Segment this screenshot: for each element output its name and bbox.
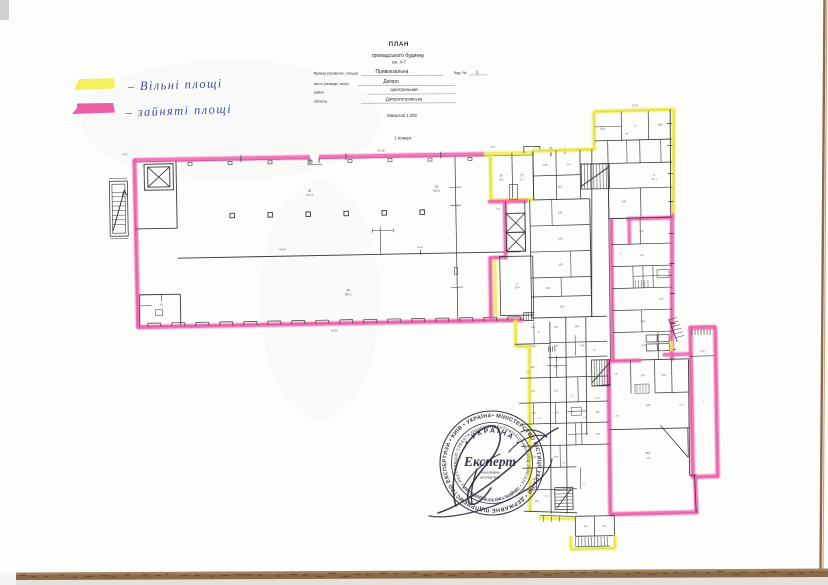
svg-text:150: 150 bbox=[558, 236, 563, 240]
svg-text:154: 154 bbox=[639, 229, 644, 233]
svg-text:160: 160 bbox=[646, 403, 651, 407]
svg-text:152: 152 bbox=[546, 286, 551, 290]
svg-text:157: 157 bbox=[659, 297, 664, 301]
svg-text:271.6: 271.6 bbox=[306, 193, 314, 197]
svg-text:176: 176 bbox=[595, 411, 600, 414]
svg-text:37: 37 bbox=[521, 173, 525, 177]
svg-text:167: 167 bbox=[554, 345, 559, 348]
svg-text:область: область bbox=[314, 99, 327, 103]
svg-text:175: 175 bbox=[554, 412, 559, 415]
svg-text:37.1: 37.1 bbox=[652, 177, 658, 181]
svg-text:169: 169 bbox=[531, 366, 536, 369]
svg-text:1.50: 1.50 bbox=[700, 350, 705, 353]
svg-text:505: 505 bbox=[658, 123, 663, 127]
svg-text:184: 184 bbox=[602, 525, 607, 528]
svg-text:183: 183 bbox=[583, 525, 588, 528]
svg-text:17.7: 17.7 bbox=[520, 177, 526, 181]
svg-text:151: 151 bbox=[559, 262, 564, 266]
svg-text:громадського будинку: громадського будинку bbox=[372, 53, 425, 59]
svg-text:145: 145 bbox=[621, 199, 626, 203]
svg-text:47.95: 47.95 bbox=[377, 149, 385, 153]
svg-text:164: 164 bbox=[554, 326, 559, 329]
svg-text:172: 172 bbox=[554, 390, 559, 393]
svg-text:162: 162 bbox=[662, 374, 667, 377]
svg-text:12.98: 12.98 bbox=[417, 247, 424, 249]
svg-text:165: 165 bbox=[575, 325, 580, 328]
svg-text:507: 507 bbox=[646, 451, 651, 455]
svg-text:незалежна: незалежна bbox=[480, 471, 500, 475]
svg-text:503: 503 bbox=[600, 127, 605, 131]
svg-text:1 поверх: 1 поверх bbox=[395, 136, 413, 141]
svg-text:Центральний: Центральний bbox=[390, 87, 418, 92]
svg-text:Вулиця (провулок, площа): Вулиця (провулок, площа) bbox=[314, 72, 358, 76]
svg-text:182: 182 bbox=[535, 500, 540, 503]
svg-text:168: 168 bbox=[580, 344, 585, 347]
svg-text:44.30: 44.30 bbox=[331, 328, 338, 332]
svg-text:Привокзальна: Привокзальна bbox=[376, 69, 409, 75]
svg-text:18.3: 18.3 bbox=[499, 177, 505, 181]
svg-text:4.10: 4.10 bbox=[490, 146, 496, 149]
svg-text:171: 171 bbox=[531, 390, 536, 393]
svg-text:385.1: 385.1 bbox=[345, 292, 353, 296]
svg-text:153: 153 bbox=[559, 304, 564, 308]
svg-text:329.2: 329.2 bbox=[433, 189, 441, 193]
svg-text:149: 149 bbox=[558, 210, 563, 214]
svg-text:41: 41 bbox=[160, 302, 164, 306]
svg-text:178: 178 bbox=[596, 433, 601, 436]
svg-text:44.85: 44.85 bbox=[279, 247, 286, 251]
svg-text:Масштаб 1:200: Масштаб 1:200 bbox=[387, 113, 417, 118]
svg-text:180: 180 bbox=[554, 456, 559, 459]
svg-text:155: 155 bbox=[639, 253, 644, 257]
svg-text:Дніпропетровська: Дніпропетровська bbox=[386, 96, 423, 101]
svg-text:1-3: 1-3 bbox=[646, 456, 650, 460]
svg-text:Буд. №: Буд. № bbox=[454, 71, 467, 75]
svg-text:ПЛАН: ПЛАН bbox=[389, 42, 409, 48]
svg-text:148: 148 bbox=[557, 184, 562, 188]
svg-text:159: 159 bbox=[641, 343, 646, 347]
svg-text:ал. 4-7: ал. 4-7 bbox=[392, 60, 406, 65]
svg-text:36: 36 bbox=[500, 174, 504, 178]
svg-text:1.48: 1.48 bbox=[623, 132, 628, 135]
svg-text:158: 158 bbox=[641, 319, 646, 323]
svg-text:14.2: 14.2 bbox=[122, 152, 128, 156]
svg-text:місто (селище, село): місто (селище, село) bbox=[314, 82, 349, 86]
svg-text:147: 147 bbox=[567, 162, 572, 166]
svg-text:1: 1 bbox=[476, 70, 479, 75]
svg-text:146: 146 bbox=[543, 163, 548, 167]
svg-text:28.4: 28.4 bbox=[515, 285, 521, 289]
svg-text:район: район bbox=[314, 90, 324, 94]
svg-text:Дніпро: Дніпро bbox=[383, 79, 399, 85]
svg-text:163: 163 bbox=[531, 326, 536, 329]
svg-text:174: 174 bbox=[531, 412, 536, 415]
svg-text:170: 170 bbox=[554, 366, 559, 369]
svg-text:161: 161 bbox=[641, 374, 646, 377]
svg-text:173: 173 bbox=[595, 397, 600, 400]
svg-text:166: 166 bbox=[531, 345, 536, 348]
svg-text:12.01: 12.01 bbox=[632, 103, 639, 107]
